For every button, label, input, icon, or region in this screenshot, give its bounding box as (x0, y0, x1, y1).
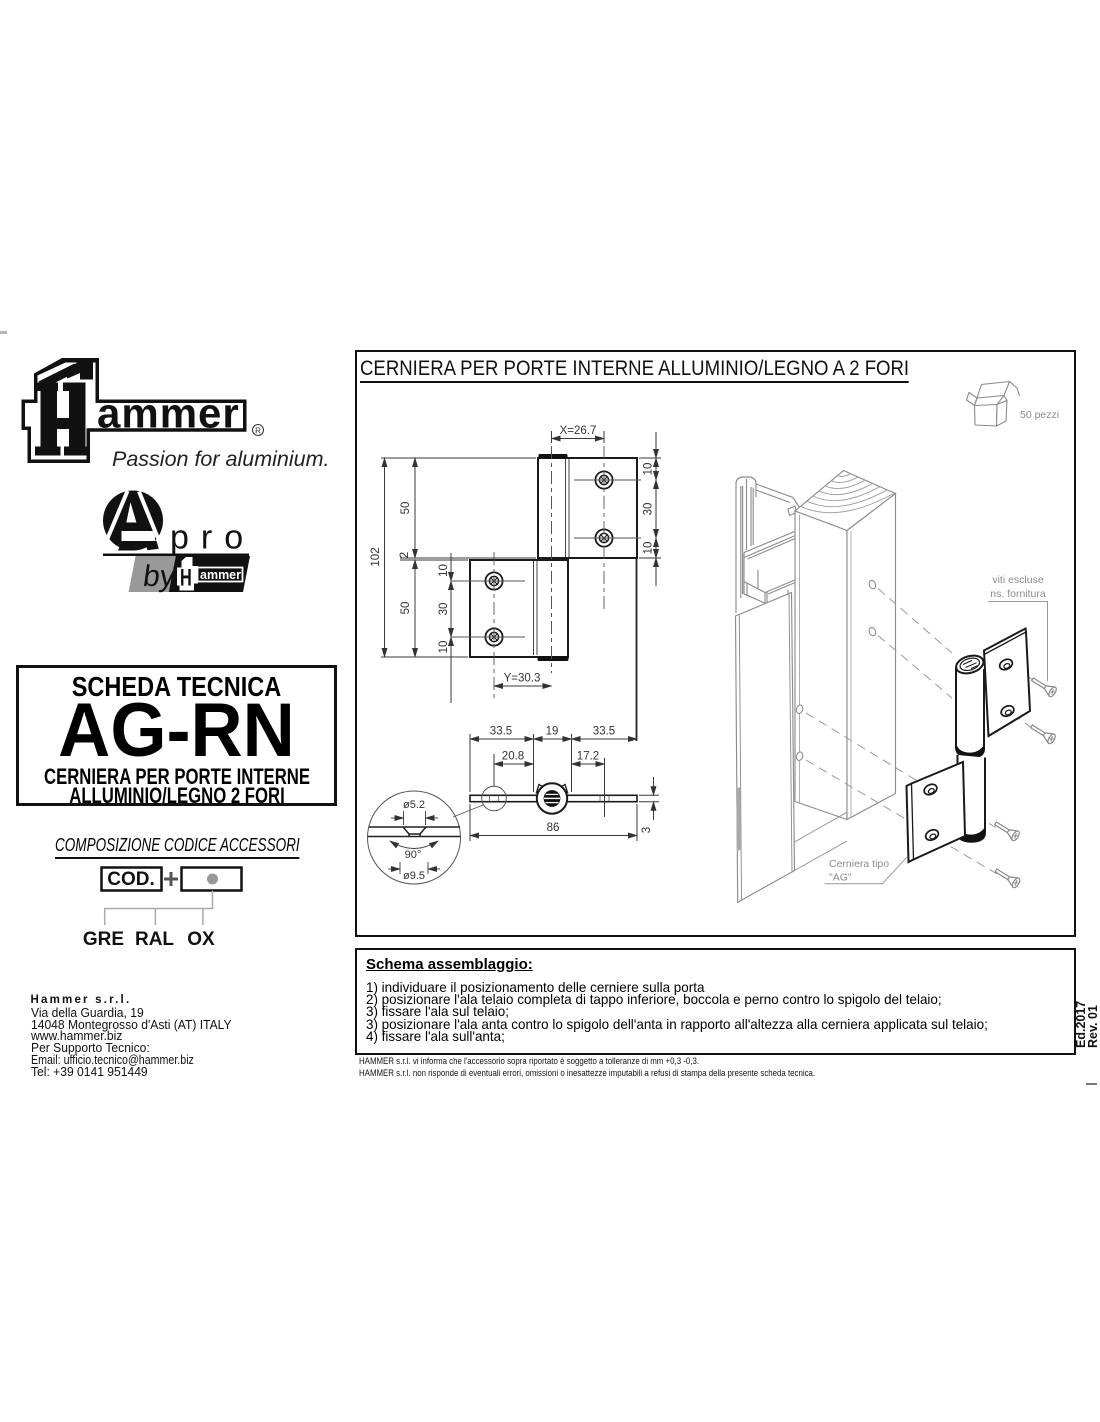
svg-text:33.5: 33.5 (593, 726, 615, 738)
svg-text:Cerniera tipo: Cerniera tipo (829, 858, 889, 870)
svg-text:50: 50 (400, 602, 412, 615)
svg-text:19: 19 (546, 726, 559, 738)
svg-text:90°: 90° (405, 849, 422, 861)
svg-text:ø9.5: ø9.5 (403, 870, 425, 882)
svg-text:50: 50 (400, 502, 412, 515)
svg-text:30: 30 (643, 503, 655, 516)
svg-text:2: 2 (399, 552, 411, 558)
svg-text:3: 3 (641, 827, 653, 833)
svg-text:86: 86 (547, 822, 560, 834)
svg-text:10: 10 (643, 542, 655, 555)
svg-text:20.8: 20.8 (502, 751, 524, 763)
svg-text:33.5: 33.5 (490, 726, 512, 738)
svg-text:102: 102 (370, 547, 382, 566)
svg-text:Y=30.3: Y=30.3 (504, 673, 541, 685)
svg-text:10: 10 (643, 463, 655, 476)
svg-text:viti escluse: viti escluse (992, 574, 1044, 586)
svg-text:ø5.2: ø5.2 (403, 799, 425, 811)
svg-text:10: 10 (438, 564, 450, 577)
svg-text:X=26.7: X=26.7 (560, 425, 597, 437)
svg-text:10: 10 (438, 641, 450, 654)
svg-text:30: 30 (438, 603, 450, 616)
svg-text:17.2: 17.2 (577, 751, 599, 763)
svg-text:ns. fornitura: ns. fornitura (990, 588, 1046, 600)
svg-text:50 pezzi: 50 pezzi (1020, 409, 1059, 421)
svg-text:"AG": "AG" (829, 872, 852, 884)
